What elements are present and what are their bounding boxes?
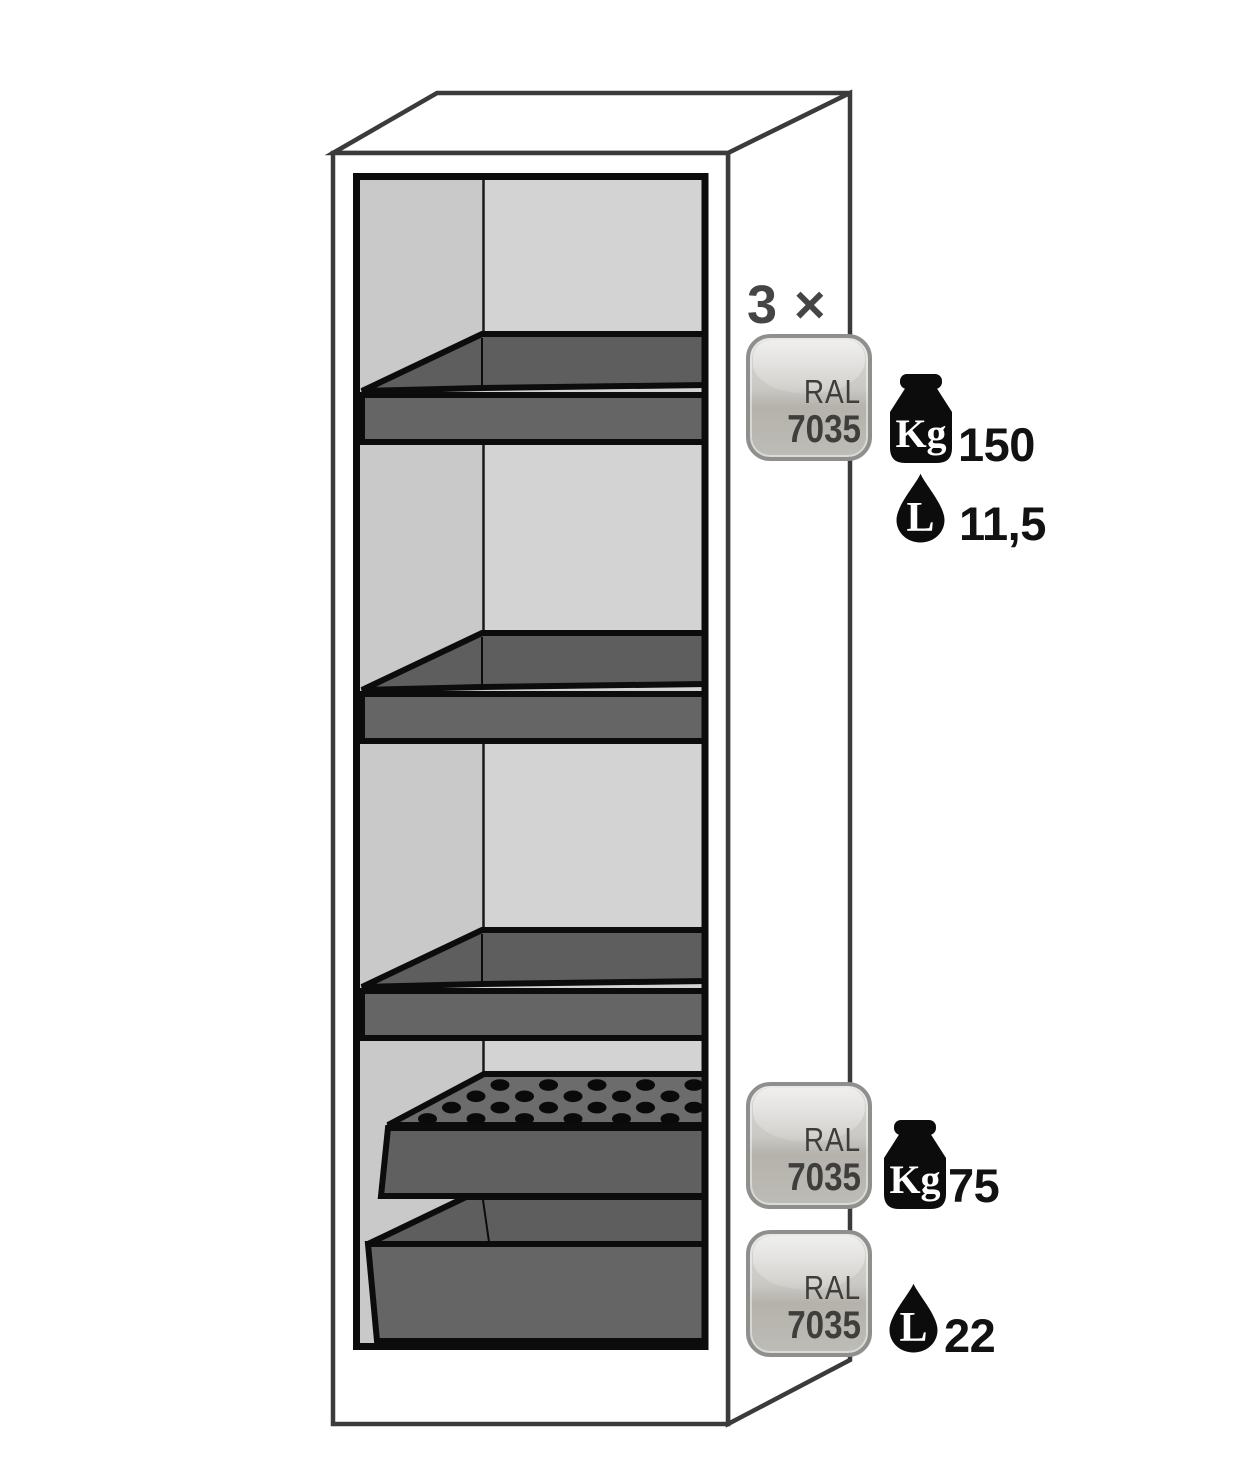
ral-code-label: 7035 <box>787 1158 861 1197</box>
ral-badge-label: RAL 7035 <box>787 1271 868 1353</box>
ral-code-label: 7035 <box>787 410 861 449</box>
weight-unit-label: Kg <box>895 411 946 456</box>
diagram-canvas: 3 × RAL 7035 Kg 150 L 11,5 RAL 7035 Kg 7… <box>0 0 1240 1459</box>
ral-badge-label: RAL 7035 <box>787 375 868 457</box>
ral-badge-label: RAL 7035 <box>787 1123 868 1205</box>
volume-unit-label: L <box>906 495 934 541</box>
shelf-load-value: 150 <box>958 421 1035 468</box>
shelf-volume-value: 11,5 <box>959 500 1046 547</box>
volume-unit-label: L <box>899 1305 927 1351</box>
ral-badge-sump: RAL 7035 <box>746 1230 872 1357</box>
ral-standard-label: RAL <box>787 375 861 408</box>
volume-drop-icon: L <box>894 473 947 543</box>
ral-badge-insert: RAL 7035 <box>746 1082 872 1209</box>
insert-load-value: 75 <box>948 1162 999 1209</box>
quantity-label: 3 × <box>747 278 827 332</box>
volume-drop-icon: L <box>887 1283 940 1353</box>
ral-standard-label: RAL <box>787 1123 861 1156</box>
weight-unit-label: Kg <box>889 1157 940 1202</box>
weight-capacity-icon: Kg <box>890 374 952 463</box>
weight-capacity-icon: Kg <box>884 1120 946 1209</box>
ral-code-label: 7035 <box>787 1306 861 1345</box>
sump-volume-value: 22 <box>944 1312 995 1359</box>
cabinet-illustration <box>0 0 1240 1459</box>
ral-badge-shelf: RAL 7035 <box>746 334 872 461</box>
ral-standard-label: RAL <box>787 1271 861 1304</box>
bottom-sump-tray <box>368 1197 705 1341</box>
